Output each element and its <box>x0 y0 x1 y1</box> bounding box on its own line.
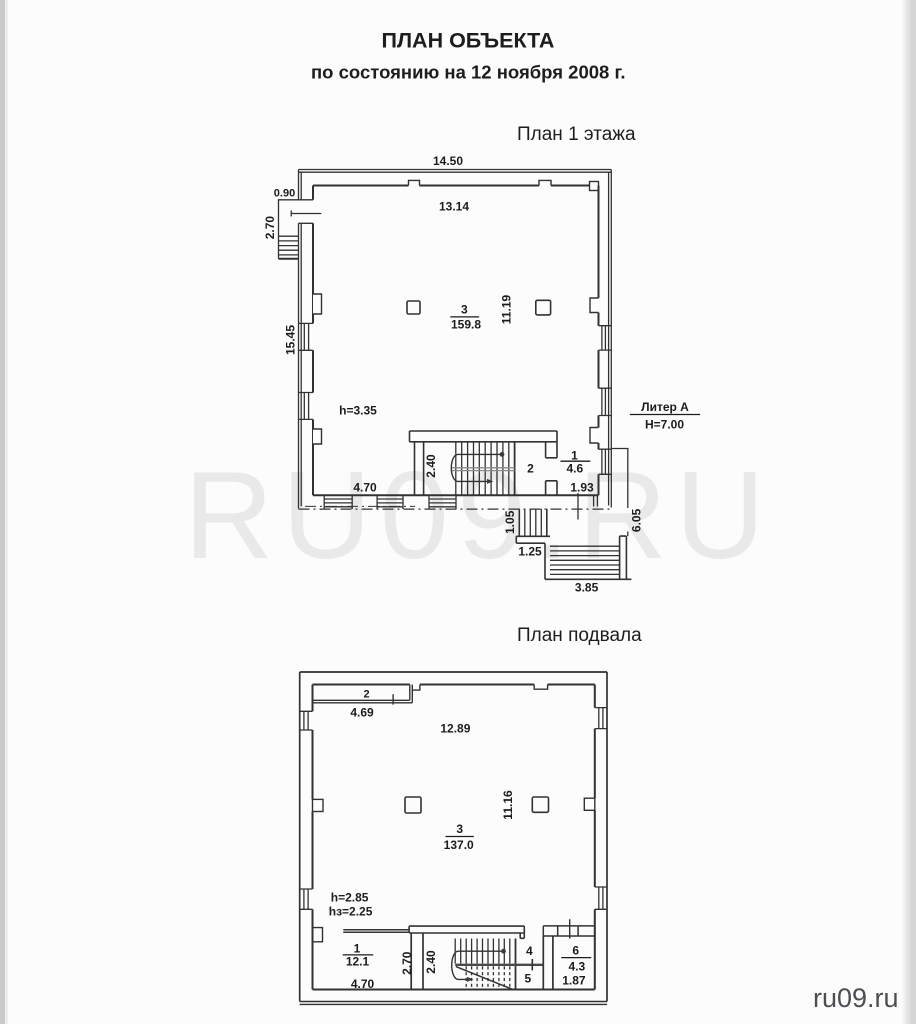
svg-text:0.90: 0.90 <box>274 188 295 200</box>
svg-text:План подвала: План подвала <box>517 625 642 646</box>
svg-text:h=2.85: h=2.85 <box>331 891 369 905</box>
svg-text:2.40: 2.40 <box>424 950 438 974</box>
svg-text:1.93: 1.93 <box>570 481 594 495</box>
svg-text:6.05: 6.05 <box>630 508 644 532</box>
svg-text:2.40: 2.40 <box>424 454 438 478</box>
svg-text:2: 2 <box>527 462 534 476</box>
svg-text:4.6: 4.6 <box>566 462 583 476</box>
svg-text:План 1 этажа: План 1 этажа <box>517 124 636 145</box>
svg-text:4.69: 4.69 <box>350 706 374 720</box>
svg-text:3: 3 <box>456 822 463 836</box>
svg-text:137.0: 137.0 <box>444 838 474 852</box>
svg-text:15.45: 15.45 <box>284 325 298 355</box>
svg-text:4.70: 4.70 <box>353 481 377 495</box>
svg-text:13.14: 13.14 <box>439 200 469 214</box>
svg-text:4.3: 4.3 <box>569 960 586 974</box>
svg-text:2: 2 <box>363 689 369 701</box>
svg-text:11.19: 11.19 <box>500 294 514 324</box>
svg-text:1: 1 <box>354 942 361 956</box>
svg-text:3: 3 <box>461 303 468 317</box>
svg-text:2.70: 2.70 <box>263 216 277 240</box>
svg-text:2.70: 2.70 <box>400 951 414 975</box>
svg-text:1: 1 <box>571 449 578 463</box>
svg-text:12.89: 12.89 <box>440 722 470 736</box>
svg-text:4.70: 4.70 <box>351 977 375 991</box>
svg-text:14.50: 14.50 <box>433 154 463 168</box>
svg-text:1.87: 1.87 <box>562 974 586 988</box>
svg-text:hз=2.25: hз=2.25 <box>329 905 373 919</box>
svg-text:h=3.35: h=3.35 <box>339 404 377 418</box>
svg-text:11.16: 11.16 <box>501 790 515 820</box>
svg-text:по состоянию на 12 ноября 2008: по состоянию на 12 ноября 2008 г. <box>311 62 625 83</box>
svg-text:6: 6 <box>572 944 579 958</box>
svg-text:12.1: 12.1 <box>346 955 370 969</box>
svg-text:3.85: 3.85 <box>575 581 599 595</box>
svg-text:1.05: 1.05 <box>503 510 517 534</box>
svg-text:Н=7.00: Н=7.00 <box>645 418 684 432</box>
svg-text:ru09.ru: ru09.ru <box>813 983 899 1013</box>
svg-text:ПЛАН ОБЪЕКТА: ПЛАН ОБЪЕКТА <box>382 29 555 53</box>
svg-text:Литер А: Литер А <box>641 400 689 414</box>
svg-text:1.25: 1.25 <box>518 545 542 559</box>
svg-text:159.8: 159.8 <box>451 318 481 332</box>
svg-text:5: 5 <box>524 972 531 986</box>
svg-text:4: 4 <box>526 944 533 958</box>
